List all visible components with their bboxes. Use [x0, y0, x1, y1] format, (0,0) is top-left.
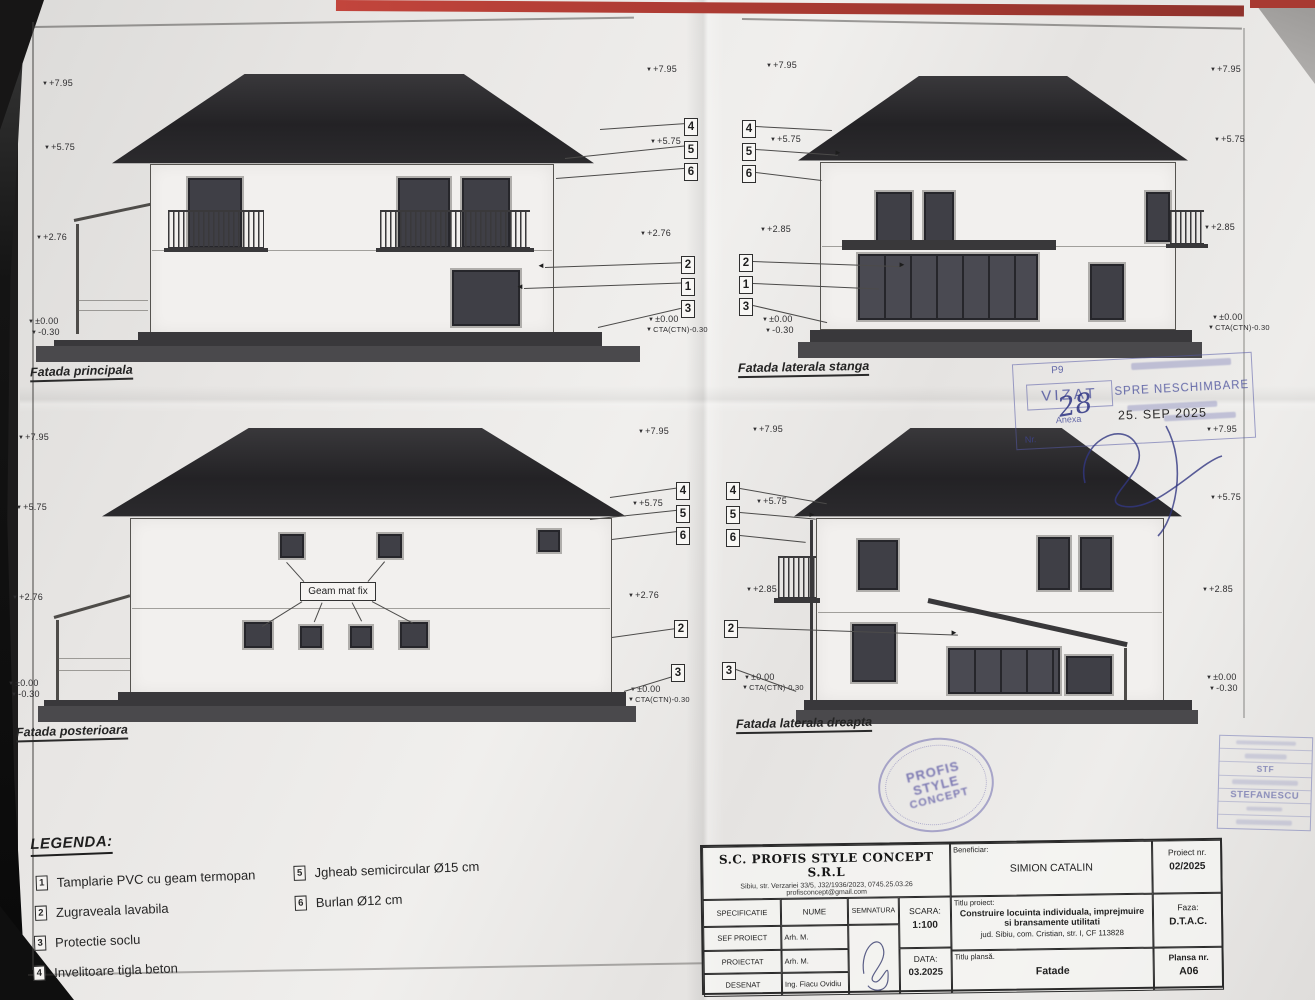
terrace-post — [76, 224, 79, 334]
project-number-label: Proiect nr. — [1153, 847, 1221, 858]
elevation-marker: ±0.00 — [28, 316, 59, 326]
neschimbare-title: SPRE NESCHIMBARE — [1114, 379, 1248, 398]
elevation-marker: +5.75 — [770, 134, 801, 144]
sheet-title-label: Titlu plansă. — [953, 949, 1153, 963]
elevation-marker: ±0.00 — [1206, 672, 1237, 682]
elevation-marker: +7.95 — [646, 64, 677, 74]
callout-box: 5 — [742, 143, 756, 161]
stamp-row — [1218, 815, 1310, 831]
legend-item: 4 Invelitoare tigla beton — [33, 960, 178, 981]
round-company-stamp: PROFIS STYLE CONCEPT — [872, 730, 1000, 839]
legend-item: 3 Protectie soclu — [34, 932, 141, 951]
person-cell: Ing. Fiacu Ovidiu — [782, 972, 849, 996]
elevation-marker: +2.85 — [746, 584, 777, 594]
elevation-marker: ±0.00 — [762, 314, 793, 324]
elevation-marker: +7.95 — [18, 432, 49, 442]
elevation-marker: +7.95 — [1210, 64, 1241, 74]
sheet-number-label: Plansa nr. — [1155, 952, 1223, 963]
date-label: DATA: — [901, 954, 951, 965]
elevation-marker: CTA(CTN)-0.30 — [628, 695, 690, 704]
callout-box: 4 — [684, 118, 698, 136]
terrace-glazing — [1064, 654, 1114, 696]
elevation-marker: +2.85 — [1204, 222, 1235, 232]
legend-item: 6 Burlan Ø12 cm — [294, 892, 402, 911]
callout-box: 1 — [681, 278, 695, 296]
frame-line-left — [32, 22, 34, 970]
small-window — [298, 624, 324, 650]
scale-cell: SCARA: 1:100 — [899, 897, 952, 949]
phase-cell: Faza: D.T.A.C. — [1153, 893, 1224, 948]
elevation-marker: CTA(CTN)-0.30 — [1208, 323, 1270, 332]
elevation-marker: +5.75 — [16, 502, 47, 512]
ground-band — [36, 346, 640, 362]
callout-box: 2 — [739, 254, 753, 272]
role-cell: DESENAT — [704, 973, 782, 997]
small-window — [376, 532, 404, 560]
project-title: Construire locuinta individuala, imprejm… — [952, 906, 1152, 929]
elevation-marker: +5.75 — [756, 496, 787, 506]
legend-item-text: Zugraveala lavabila — [56, 901, 169, 920]
callout-box: 5 — [684, 141, 698, 159]
legend-title: LEGENDA: — [30, 833, 113, 857]
small-window — [536, 528, 562, 554]
sheet-title: Fatade — [953, 964, 1153, 979]
legend-item-text: Invelitoare tigla beton — [54, 960, 178, 980]
terrace-post — [56, 620, 59, 700]
balcony-slab — [164, 248, 268, 252]
terrace-rail-line — [78, 300, 148, 301]
elevation-marker: -0.30 — [1209, 683, 1238, 693]
signature-scribble — [849, 925, 900, 995]
downspout-pipe — [810, 520, 813, 700]
legend-item-number: 6 — [294, 895, 307, 910]
floor-line — [132, 608, 610, 609]
role-cell: PROIECTAT — [703, 950, 781, 974]
legend-item-text: Jgheab semicircular Ø15 cm — [314, 859, 479, 880]
facade-title: Fatada laterala dreapta — [736, 715, 872, 734]
elevation-marker: ±0.00 — [8, 678, 39, 688]
phase-label: Faza: — [1154, 902, 1222, 913]
elevation-marker: -0.30 — [765, 325, 794, 335]
signature-scribble — [1070, 408, 1240, 538]
callout-box: 3 — [671, 664, 685, 682]
balcony-railing — [380, 210, 530, 250]
spec-header-cell: SPECIFICATIE — [703, 899, 781, 927]
callout-box: 5 — [726, 506, 740, 524]
elevation-marker: +2.76 — [36, 232, 67, 242]
window — [856, 538, 900, 592]
callout-box: 3 — [722, 662, 736, 680]
beneficiary-name: SIMION CATALIN — [951, 861, 1151, 876]
small-window — [348, 624, 374, 650]
arrowhead-icon: ► — [808, 511, 816, 519]
window — [1088, 262, 1126, 322]
facade-title: Fatada laterala stanga — [738, 359, 870, 378]
legend-item-number: 1 — [36, 875, 49, 890]
arrowhead-icon: ► — [898, 261, 906, 269]
callout-box: 2 — [681, 256, 695, 274]
window — [1144, 190, 1172, 244]
person-cell: Arh. M. Stefanescu — [781, 949, 848, 973]
callout-box: 3 — [681, 300, 695, 318]
legend-item-text: Protectie soclu — [55, 932, 141, 950]
elevation-marker: +2.76 — [12, 592, 43, 602]
callout-box: 4 — [742, 120, 756, 138]
balcony-slab — [376, 248, 534, 252]
legend-item-number: 4 — [33, 966, 46, 981]
elevation-marker: +7.95 — [638, 426, 669, 436]
phase-value: D.T.A.C. — [1154, 916, 1222, 928]
beneficiary-label: Beneficiar: — [951, 842, 1151, 856]
elevation-marker: +2.76 — [640, 228, 671, 238]
terrace-rail-line — [58, 658, 130, 659]
elevation-marker: +5.75 — [44, 142, 75, 152]
sheet-number: A06 — [1155, 965, 1223, 978]
balcony-railing — [778, 556, 816, 600]
architect-corner-stamp: STF STEFANESCU — [1217, 735, 1313, 831]
company-name: S.C. PROFIS STYLE CONCEPT S.R.L — [703, 850, 949, 881]
window — [922, 190, 956, 244]
facade-title: Fatada posterioara — [16, 723, 128, 743]
balcony-slab — [774, 598, 820, 603]
legend-item-number: 5 — [293, 865, 306, 880]
elevation-marker: CTA(CTN)-0.30 — [646, 325, 708, 334]
person-cell: Arh. M. Stefanescu — [781, 925, 848, 950]
name-header-cell: NUME — [781, 898, 848, 926]
balcony-railing — [1170, 210, 1204, 246]
callout-box: 3 — [739, 298, 753, 316]
signature-header-cell: SEMNATURA — [848, 897, 899, 925]
legend: LEGENDA: 1 Tamplarie PVC cu geam termopa… — [30, 811, 683, 986]
company-cell: S.C. PROFIS STYLE CONCEPT S.R.L Sibiu, s… — [702, 844, 951, 900]
project-title-cell: Titlu proiect: Construire locuinta indiv… — [951, 894, 1154, 951]
facade-title: Fatada principala — [30, 363, 133, 383]
terrace-glazing — [856, 252, 1040, 322]
window — [450, 268, 522, 328]
elevation-marker: ±0.00 — [1212, 312, 1243, 322]
stamp-code: P9 — [1051, 365, 1064, 377]
callout-box: 6 — [742, 165, 756, 183]
callout-box: 6 — [726, 529, 740, 547]
legend-item-number: 2 — [35, 905, 48, 920]
elevation-marker: +7.95 — [752, 424, 783, 434]
project-number-cell: Proiect nr. 02/2025 — [1152, 840, 1223, 894]
balcony-railing — [168, 210, 264, 250]
stamp-nr-label: Nr. — [1025, 434, 1037, 445]
ground-band — [798, 342, 1202, 358]
callout-box: 2 — [724, 620, 738, 638]
callout-box: 4 — [726, 482, 740, 500]
window — [1078, 535, 1114, 592]
elevation-marker: -0.30 — [11, 689, 40, 699]
stamp-faded-line — [1131, 358, 1231, 370]
beneficiary-cell: Beneficiar: SIMION CATALIN — [950, 841, 1153, 897]
elevation-marker: +5.75 — [1214, 134, 1245, 144]
arrowhead-icon: ◄ — [516, 283, 524, 291]
legend-item-text: Burlan Ø12 cm — [315, 892, 402, 910]
legend-item-text: Tamplarie PVC cu geam termopan — [57, 867, 256, 890]
elevation-marker: +5.75 — [650, 136, 681, 146]
role-cell: SEF PROIECT — [703, 926, 781, 951]
title-block: S.C. PROFIS STYLE CONCEPT S.R.L Sibiu, s… — [700, 838, 1224, 995]
geam-mat-fix-label: Geam mat fix — [300, 582, 376, 601]
balcony-slab — [1166, 244, 1208, 248]
scale-label: SCARA: — [900, 906, 950, 917]
callout-box: 4 — [676, 482, 690, 500]
signature-cell — [848, 924, 900, 995]
elevation-marker: +7.95 — [42, 78, 73, 88]
project-number: 02/2025 — [1153, 861, 1221, 873]
ground-band — [38, 706, 636, 722]
small-window — [242, 620, 274, 650]
callout-box: 1 — [739, 276, 753, 294]
callout-box: 5 — [676, 505, 690, 523]
sheet-title-cell: Titlu plansă. Fatade — [951, 948, 1154, 994]
legend-item-number: 3 — [34, 935, 47, 950]
arrowhead-icon: ► — [950, 629, 958, 637]
elevation-marker: +2.76 — [628, 590, 659, 600]
window — [1036, 535, 1072, 592]
date-value: 03.2025 — [901, 967, 951, 979]
arrowhead-icon: ► — [834, 149, 842, 157]
elevation-marker: +7.95 — [766, 60, 797, 70]
small-window — [398, 620, 430, 650]
callout-box: 6 — [676, 527, 690, 545]
sheet-number-cell: Plansa nr. A06 — [1153, 947, 1224, 991]
terrace-rail-line — [58, 670, 130, 671]
legend-item: 2 Zugraveala lavabila — [35, 901, 169, 921]
drawing-sheet-photo: +7.95 +5.75 +2.76 ±0.00 -0.30 +7.95 +5.7… — [0, 0, 1315, 1000]
window — [874, 190, 914, 244]
legend-item: 1 Tamplarie PVC cu geam termopan — [36, 867, 256, 890]
elevation-marker: +5.75 — [632, 498, 663, 508]
elevation-marker: +2.85 — [1202, 584, 1233, 594]
terrace-canopy — [842, 240, 1056, 250]
date-cell: DATA: 03.2025 — [899, 947, 952, 994]
scale-value: 1:100 — [900, 920, 950, 932]
elevation-marker: +2.85 — [760, 224, 791, 234]
terrace-rail-line — [78, 310, 148, 311]
callout-box: 2 — [674, 620, 688, 638]
project-location: jud. Sibiu, com. Cristian, str. I, CF 11… — [952, 928, 1152, 940]
arrowhead-icon: ◄ — [537, 262, 545, 270]
callout-box: 6 — [684, 163, 698, 181]
elevation-marker: -0.30 — [31, 327, 60, 337]
red-backing-sliver — [1250, 0, 1315, 8]
terrace-post — [1124, 648, 1127, 702]
legend-item: 5 Jgheab semicircular Ø15 cm — [293, 859, 479, 881]
terrace-glazing — [946, 646, 1062, 696]
small-window — [278, 532, 306, 560]
